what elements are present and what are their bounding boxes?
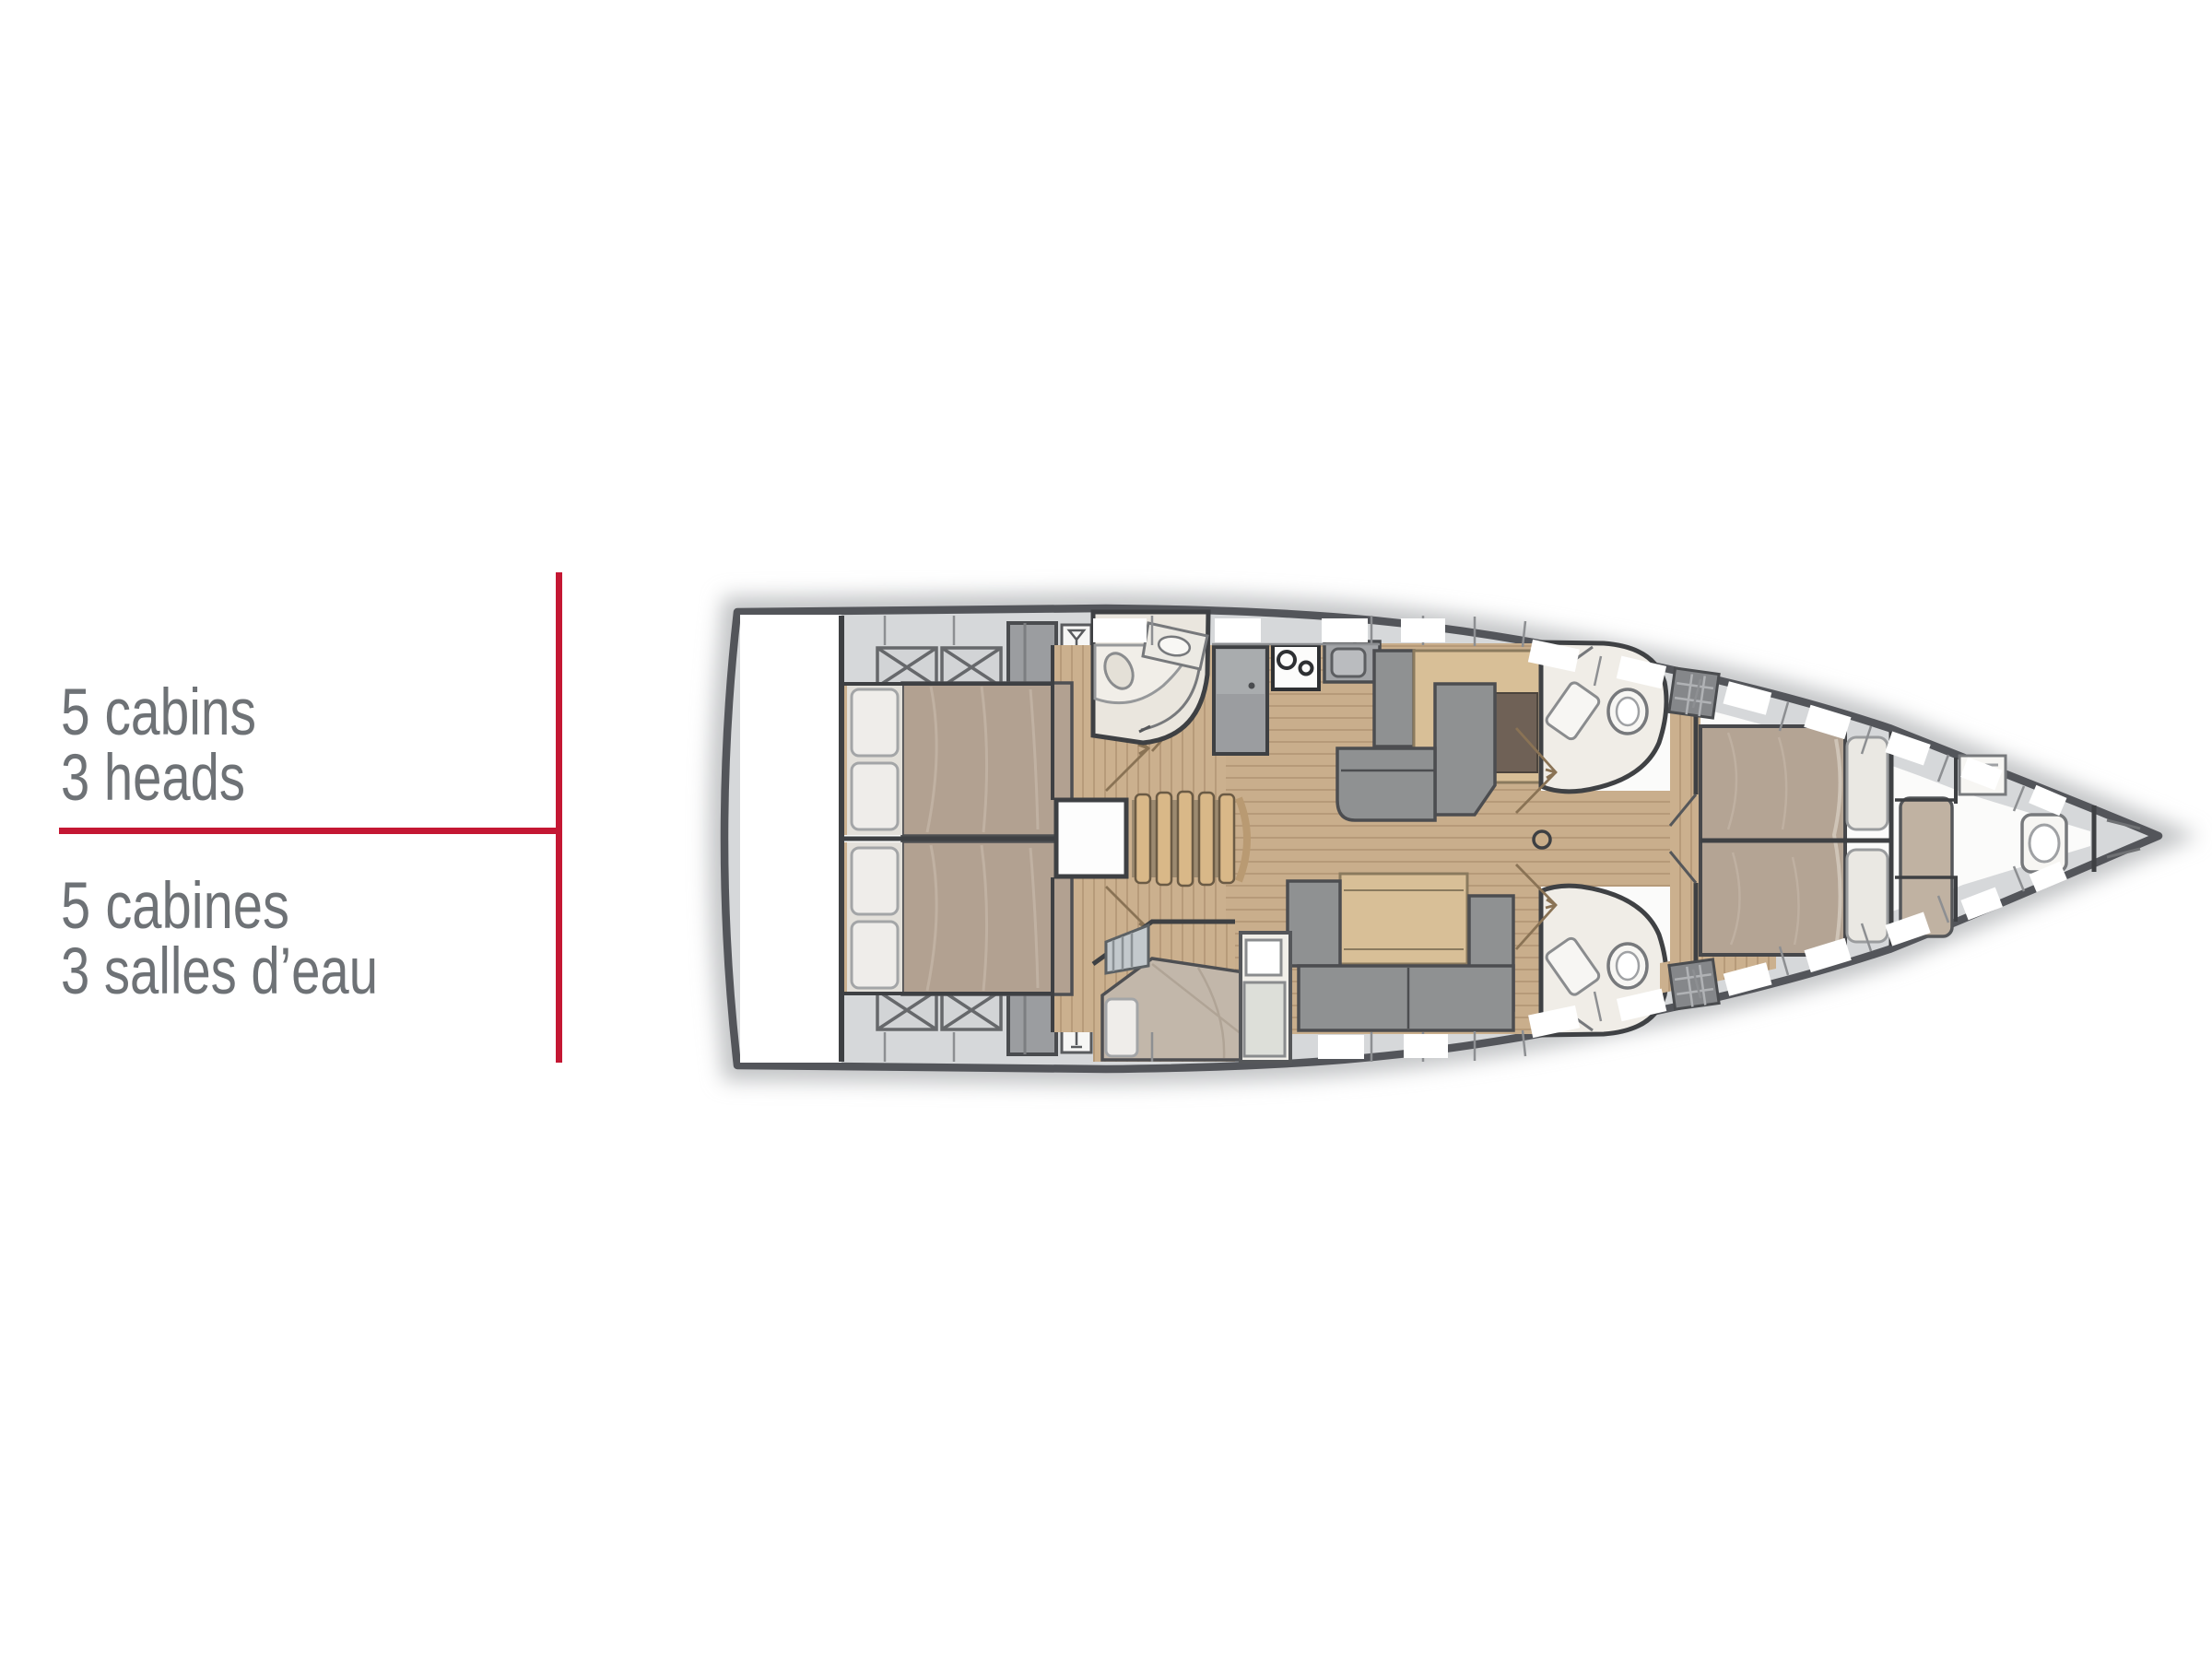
svg-text:5 cabins: 5 cabins [61, 676, 256, 749]
svg-text:5 cabines: 5 cabines [61, 870, 289, 943]
svg-text:3 heads: 3 heads [61, 742, 245, 815]
svg-text:3 salles d’eau: 3 salles d’eau [61, 935, 378, 1008]
